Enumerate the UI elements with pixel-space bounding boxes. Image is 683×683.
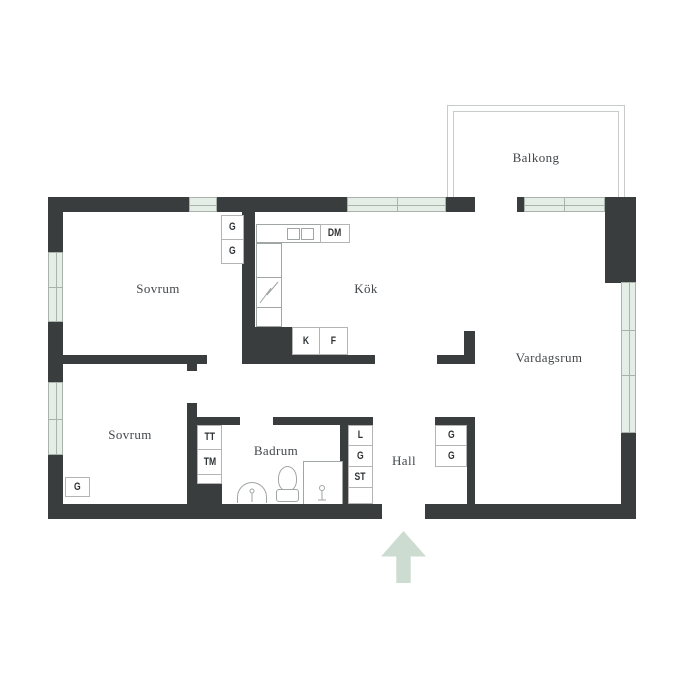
window-divider [49,287,62,288]
window-left-bedroom-bottom [48,382,63,455]
window-divider [622,330,635,331]
cleaning-label: ST [355,472,366,483]
hall-wardrobe-g2: G [435,445,467,467]
wardrobe-bedroom-bottom: G [65,477,90,497]
wardrobe-label: G [229,246,236,257]
outer-wall-left-2 [48,322,63,382]
hall-wardrobe-label: G [448,430,455,441]
living-room-label: Vardagsrum [516,350,583,366]
dishwasher-box: DM [320,224,350,243]
toilet-cistern [276,489,299,502]
window-divider [622,375,635,376]
hall-wardrobe-g1: G [435,425,467,446]
wall-bedrooms-divider-stub [187,364,197,371]
outer-wall-corner-top-right [605,197,636,283]
wardrobe-label: G [74,482,81,493]
window-top-bedroom [189,197,217,212]
laundry-empty-box [197,474,222,484]
fridge-box: K [292,327,320,355]
hall-wardrobe-label: G [448,451,455,462]
freezer-label: F [331,336,336,347]
wardrobe-bedroom-top-1: G [221,215,244,240]
hall-wardrobe-box: G [348,445,373,467]
hall-wardrobe-label: G [357,451,364,462]
hall-closet-empty-box [348,487,373,504]
dishwasher-label: DM [328,228,341,239]
wall-laundry-block [187,483,222,504]
shower-drain-icon [314,484,330,504]
sink-tap-icon [246,488,258,503]
outer-wall-top-1 [48,197,189,212]
entrance-arrow-icon [381,531,426,583]
balcony-door-jamb-left [446,197,475,212]
window-left-bedroom-top [48,252,63,322]
window-divider [49,419,62,420]
outer-wall-bottom-right [425,504,636,519]
window-divider [397,198,398,211]
wall-kitchen-bottom [255,355,375,364]
wall-bathroom-top-left [197,417,240,425]
kitchen-sink-basin-left [287,228,300,240]
window-right-living [621,282,636,433]
outer-wall-bottom-left [48,504,382,519]
window-glass-line [629,283,630,432]
kitchen-label: Kök [354,281,378,297]
wall-living-stub-horizontal [437,355,475,364]
wall-bathroom-top-right [273,417,373,425]
toilet-bowl [278,466,297,491]
balcony-label: Balkong [513,150,560,166]
wall-hall-right [467,417,475,504]
window-divider [564,198,565,211]
window-glass-line [190,205,216,206]
stove-icon [257,278,281,307]
fridge-label: K [303,336,309,347]
washer-label: TM [203,457,215,468]
hall-label: Hall [392,453,416,469]
freezer-box: F [319,327,348,355]
linen-label: L [358,430,363,441]
outer-wall-top-2 [217,197,347,212]
kitchen-sink-basin-right [301,228,314,240]
wardrobe-bedroom-top-2: G [221,239,244,264]
dryer-label: TT [204,432,214,443]
cleaning-closet-box: ST [348,466,373,488]
bedroom-bottom-label: Sovrum [108,427,152,443]
window-top-living [524,197,605,212]
bathroom-label: Badrum [254,443,298,459]
floor-plan: Balkong [0,0,683,683]
bedroom-top-label: Sovrum [136,281,180,297]
wardrobe-label: G [229,222,236,233]
linen-closet-box: L [348,425,373,446]
window-top-kitchen [347,197,446,212]
dryer-box: TT [197,425,222,450]
outer-wall-left-1 [48,197,63,252]
balcony-door-jamb-right [517,197,524,212]
stove-box [256,277,282,308]
washer-box: TM [197,449,222,475]
wall-bedrooms-divider [48,355,207,364]
